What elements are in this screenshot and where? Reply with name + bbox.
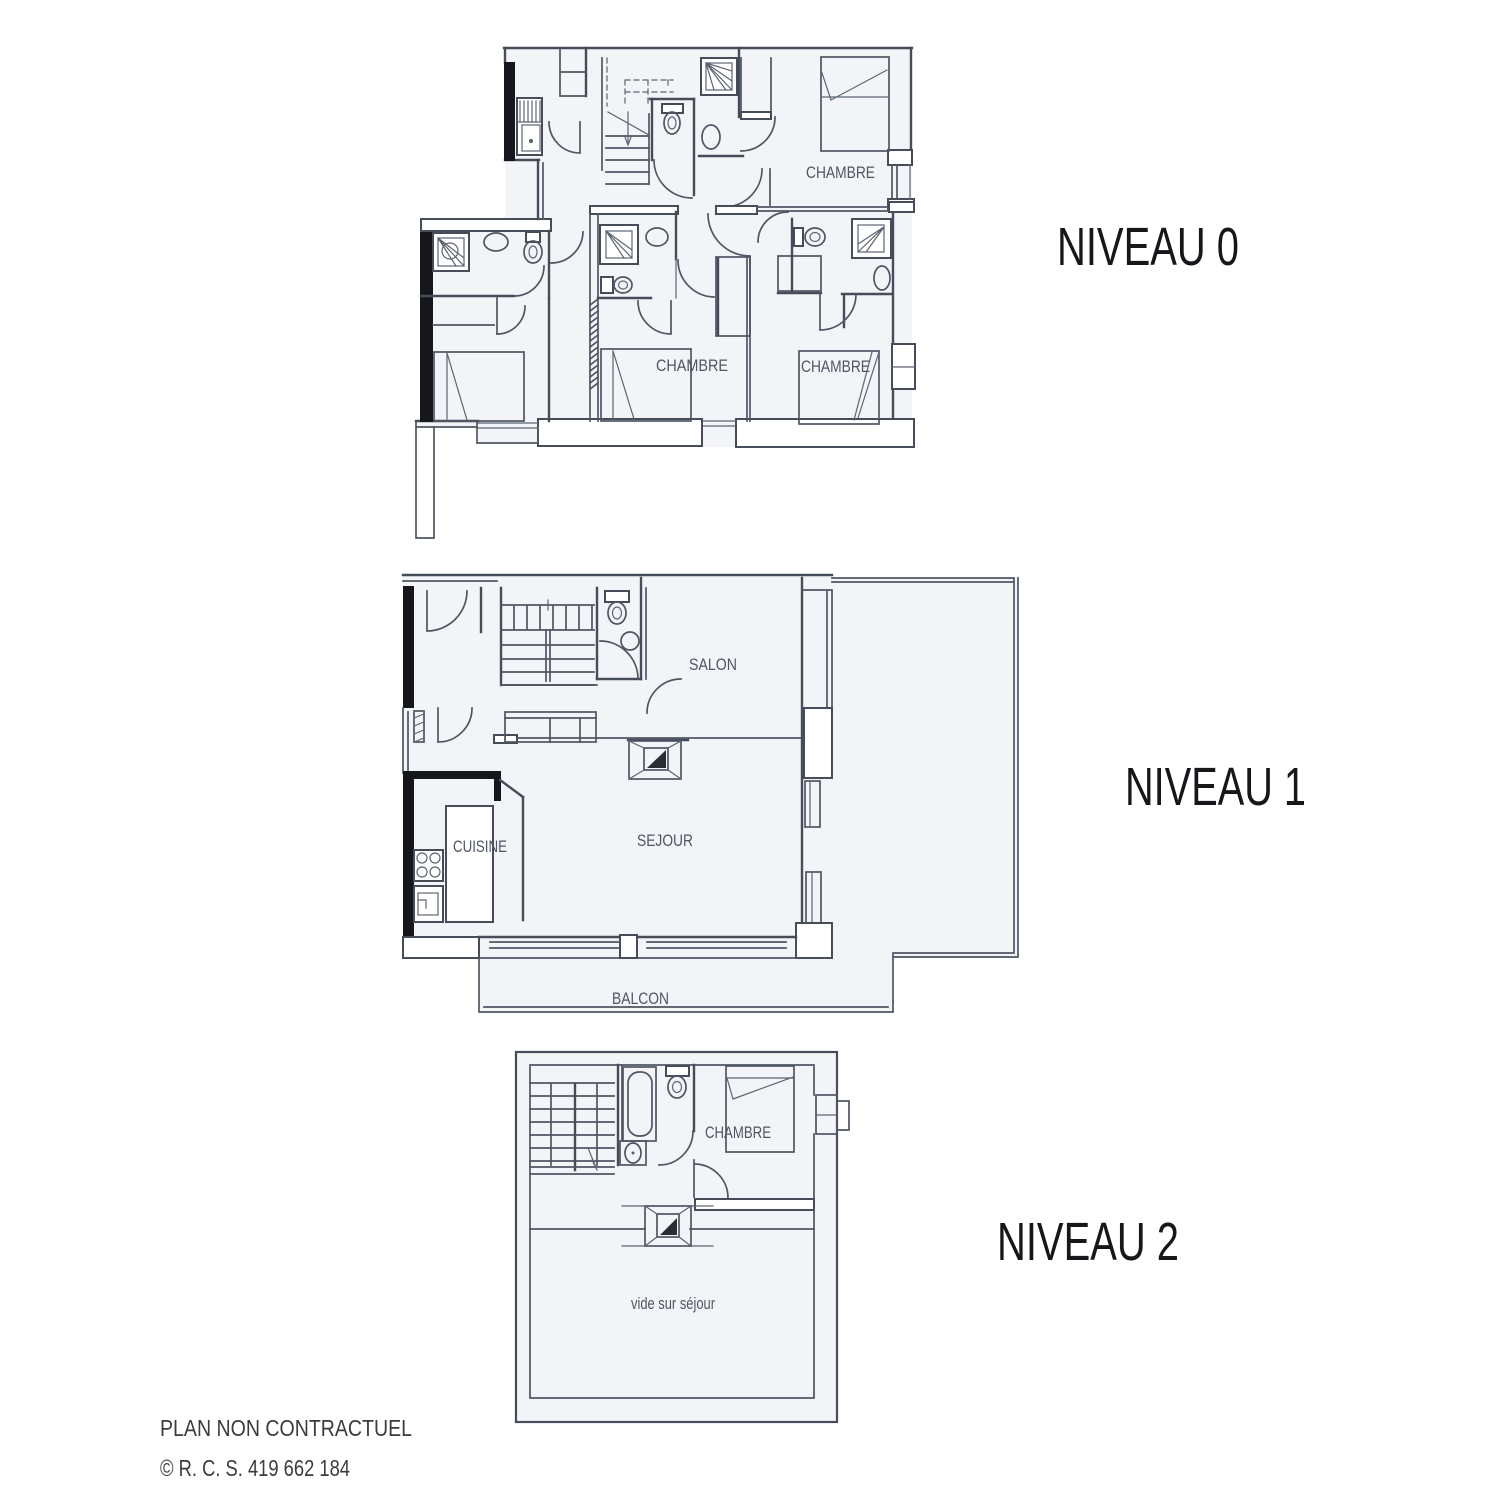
svg-text:NIVEAU 1: NIVEAU 1 [1125, 757, 1306, 817]
svg-text:vide sur séjour: vide sur séjour [631, 1294, 715, 1313]
svg-text:SALON: SALON [689, 655, 737, 674]
svg-text:CHAMBRE: CHAMBRE [705, 1123, 771, 1142]
svg-text:PLAN NON CONTRACTUEL: PLAN NON CONTRACTUEL [160, 1415, 412, 1441]
svg-text:© R. C. S. 419 662 184: © R. C. S. 419 662 184 [160, 1455, 350, 1481]
svg-text:CHAMBRE: CHAMBRE [801, 357, 870, 376]
svg-text:CUISINE: CUISINE [453, 837, 507, 856]
svg-text:CHAMBRE: CHAMBRE [806, 163, 875, 182]
svg-text:BALCON: BALCON [612, 989, 669, 1008]
svg-text:NIVEAU 2: NIVEAU 2 [997, 1212, 1179, 1272]
svg-text:CHAMBRE: CHAMBRE [656, 356, 728, 375]
svg-text:NIVEAU 0: NIVEAU 0 [1057, 217, 1239, 277]
svg-text:SEJOUR: SEJOUR [637, 831, 693, 850]
